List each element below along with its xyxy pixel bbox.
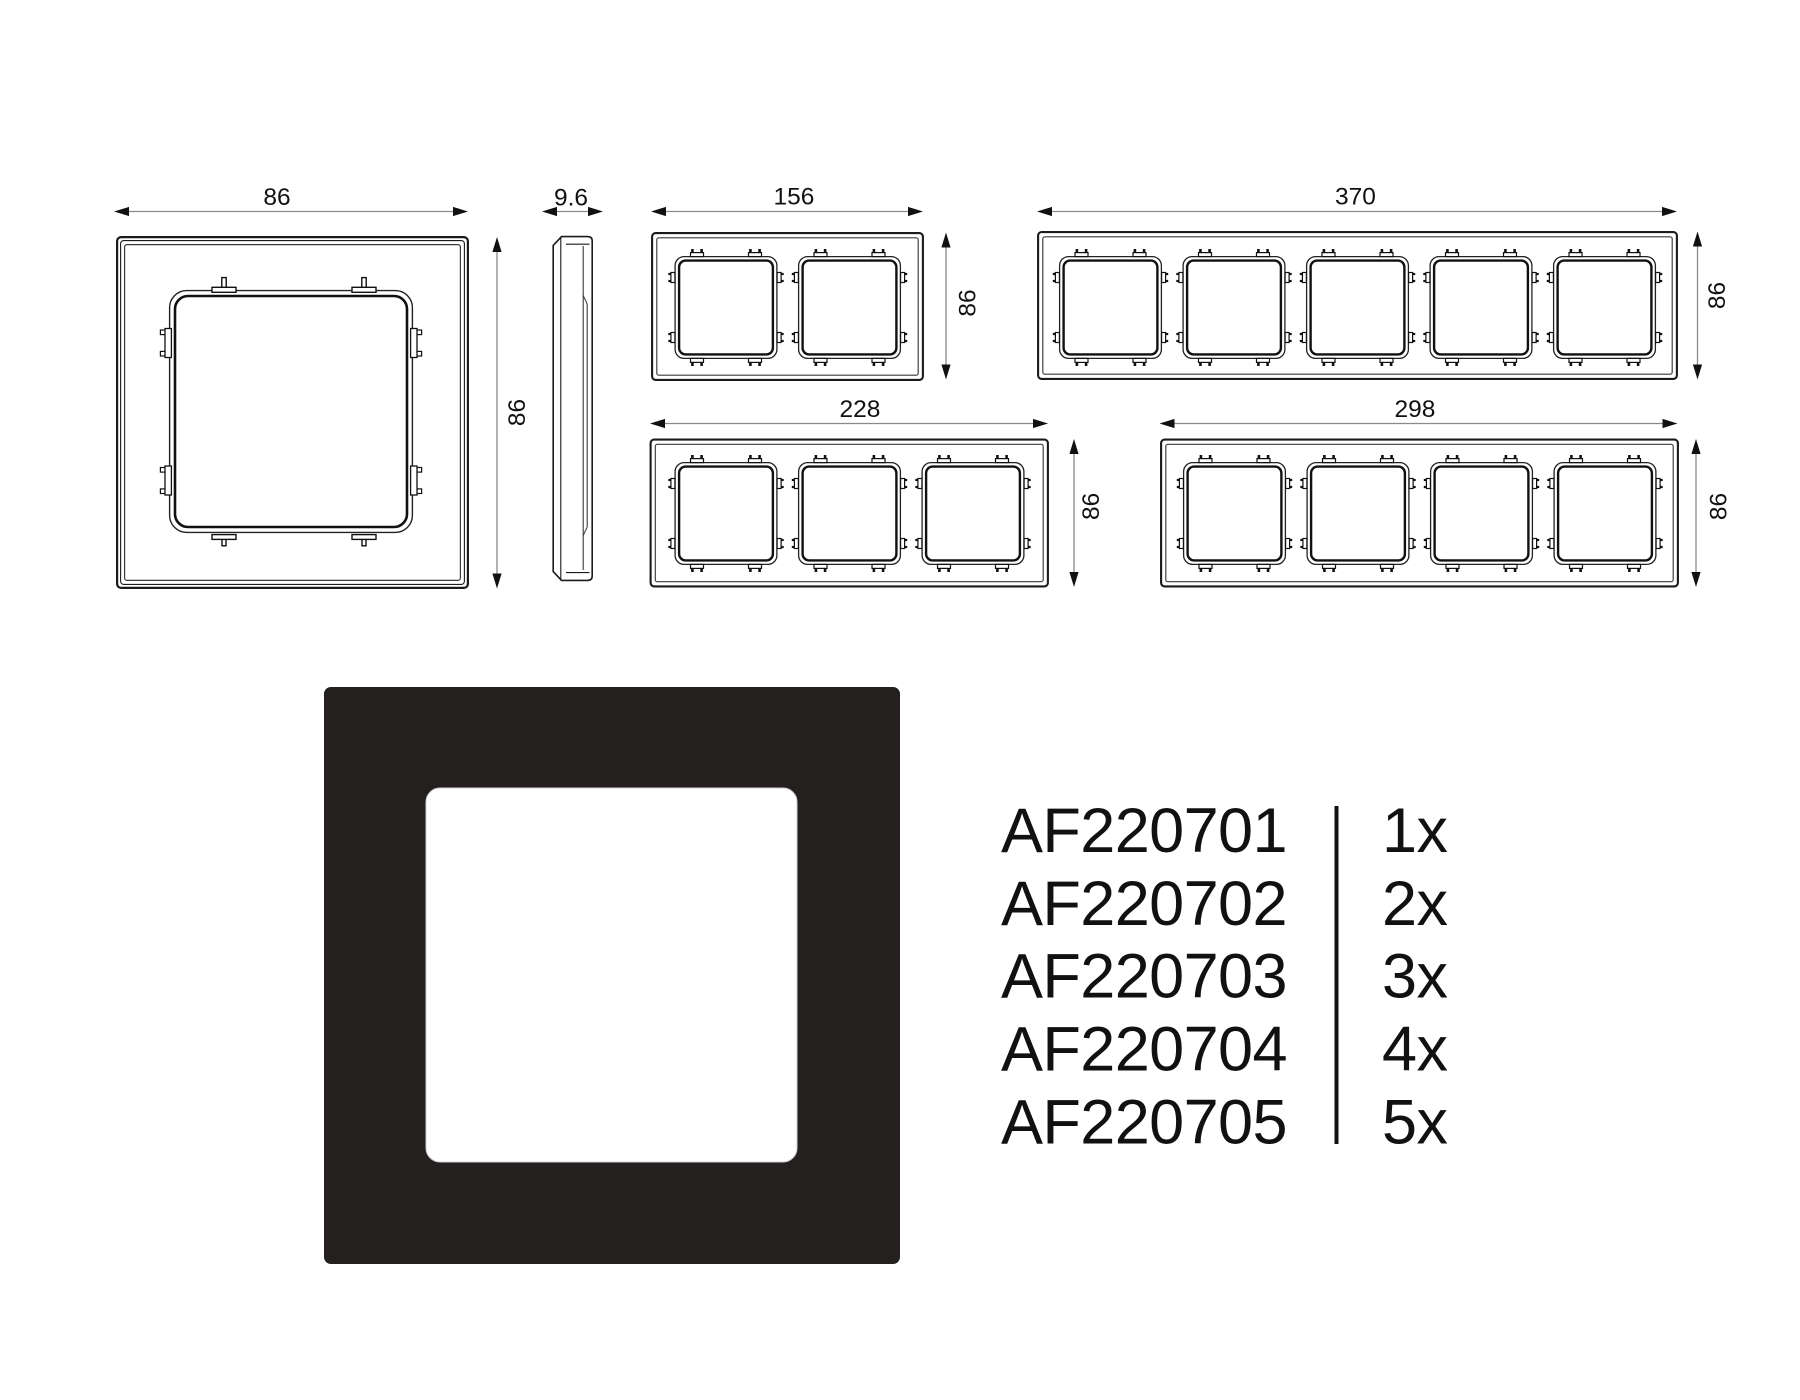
svg-text:AF220704: AF220704 [1001,1015,1287,1085]
svg-text:298: 298 [1395,396,1436,423]
svg-text:5x: 5x [1382,1087,1447,1157]
svg-text:AF220701: AF220701 [1001,796,1287,866]
svg-text:AF220703: AF220703 [1001,942,1287,1012]
svg-text:AF220705: AF220705 [1001,1087,1287,1157]
svg-text:4x: 4x [1382,1015,1447,1085]
svg-text:86: 86 [954,289,981,316]
svg-text:1x: 1x [1382,796,1447,866]
svg-text:86: 86 [1705,493,1732,520]
svg-text:3x: 3x [1382,942,1447,1012]
svg-text:86: 86 [504,399,531,426]
svg-text:86: 86 [1704,282,1731,309]
svg-text:2x: 2x [1382,869,1447,939]
svg-text:AF220702: AF220702 [1001,869,1287,939]
svg-text:228: 228 [840,396,881,423]
svg-text:86: 86 [263,184,290,211]
svg-text:86: 86 [1078,493,1105,520]
svg-text:370: 370 [1335,184,1376,211]
svg-text:156: 156 [774,184,815,211]
svg-text:9.6: 9.6 [554,185,588,212]
